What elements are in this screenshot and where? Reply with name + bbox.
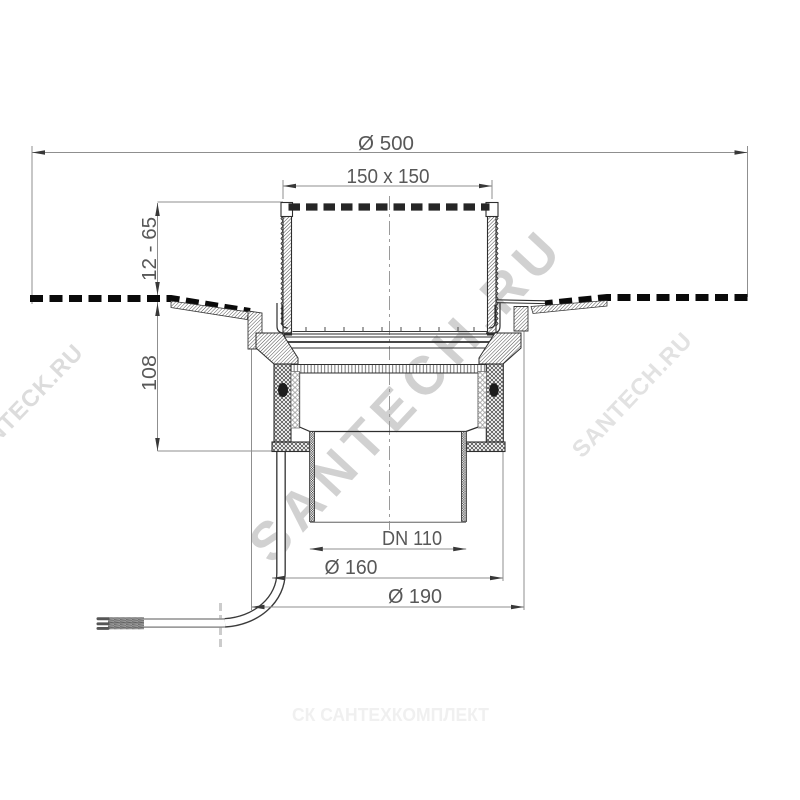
svg-text:СК САНТЕХКОМПЛЕКТ: СК САНТЕХКОМПЛЕКТ	[292, 705, 489, 725]
svg-text:Ø 190: Ø 190	[388, 585, 442, 608]
svg-text:Ø 500: Ø 500	[358, 132, 414, 155]
svg-text:150 x 150: 150 x 150	[347, 165, 430, 188]
svg-text:12 - 65: 12 - 65	[138, 217, 161, 281]
svg-text:DN 110: DN 110	[382, 527, 442, 550]
svg-text:108: 108	[138, 355, 161, 391]
svg-text:Ø 160: Ø 160	[325, 556, 378, 579]
